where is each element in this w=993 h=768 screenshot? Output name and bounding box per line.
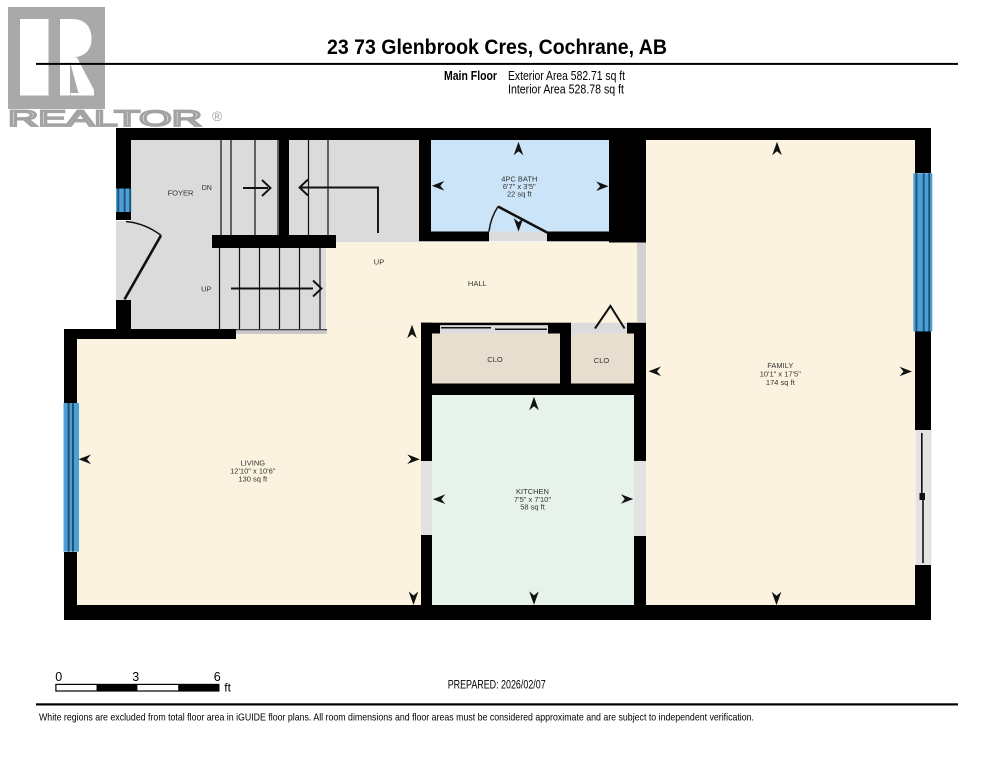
svg-text:ft: ft — [224, 681, 231, 695]
svg-text:White regions are excluded fro: White regions are excluded from total fl… — [39, 712, 754, 724]
svg-text:UP: UP — [374, 257, 384, 266]
svg-text:Main Floor: Main Floor — [444, 69, 497, 83]
svg-text:HALL: HALL — [468, 279, 487, 288]
svg-text:0: 0 — [55, 670, 62, 684]
svg-text:FOYER: FOYER — [168, 189, 194, 198]
svg-text:®: ® — [212, 108, 223, 124]
svg-text:PREPARED: 2026/02/07: PREPARED: 2026/02/07 — [448, 680, 546, 692]
svg-text:CLO: CLO — [487, 355, 503, 364]
svg-text:REALTOR: REALTOR — [8, 106, 202, 131]
svg-text:CLO: CLO — [594, 356, 610, 365]
svg-text:Exterior Area 582.71 sq ft: Exterior Area 582.71 sq ft — [508, 69, 625, 83]
svg-text:174 sq ft: 174 sq ft — [766, 378, 796, 387]
svg-text:6: 6 — [214, 670, 221, 684]
svg-text:130 sq ft: 130 sq ft — [238, 475, 268, 484]
svg-text:23 73 Glenbrook Cres, Cochrane: 23 73 Glenbrook Cres, Cochrane, AB — [327, 36, 667, 59]
svg-text:58 sq ft: 58 sq ft — [520, 503, 546, 512]
svg-text:Interior Area 528.78 sq ft: Interior Area 528.78 sq ft — [508, 83, 624, 97]
svg-text:22 sq ft: 22 sq ft — [507, 190, 533, 199]
svg-text:UP: UP — [201, 284, 211, 293]
svg-text:DN: DN — [202, 185, 212, 192]
svg-text:3: 3 — [132, 670, 139, 684]
svg-text:FAMILY: FAMILY — [767, 361, 793, 370]
